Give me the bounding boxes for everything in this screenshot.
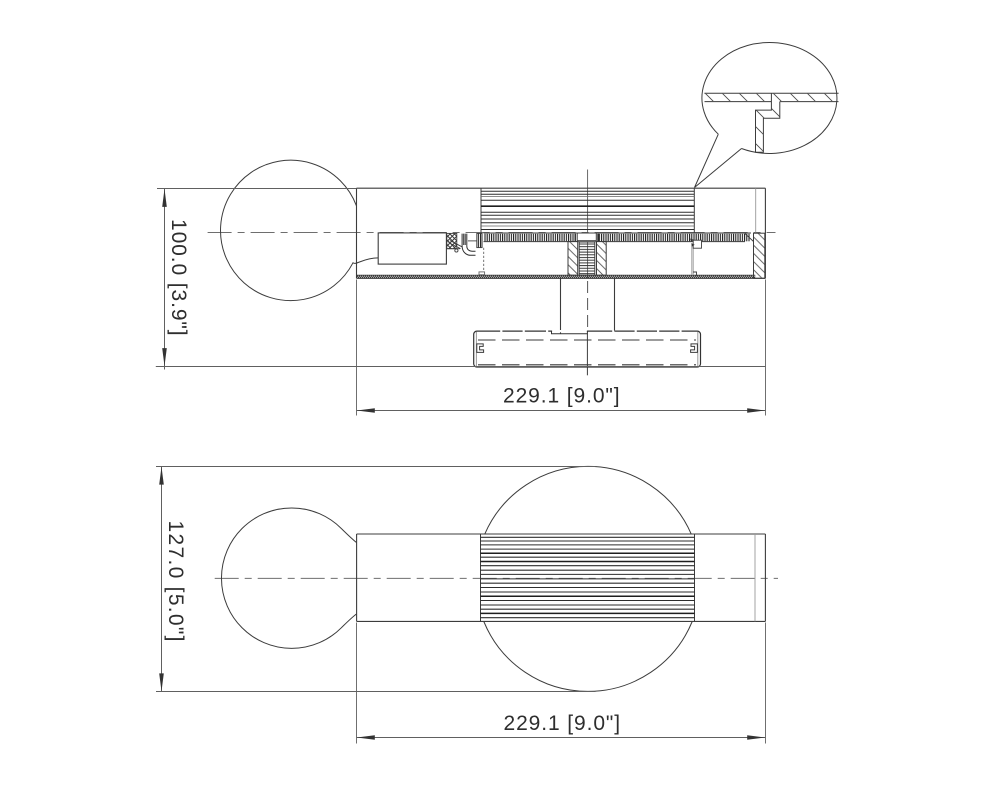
svg-text:229.1 [9.0"]: 229.1 [9.0"] bbox=[504, 712, 622, 735]
svg-text:229.1 [9.0"]: 229.1 [9.0"] bbox=[503, 384, 621, 407]
svg-text:127.0 [5.0"]: 127.0 [5.0"] bbox=[164, 521, 187, 643]
svg-text:100.0 [3.9"]: 100.0 [3.9"] bbox=[167, 219, 190, 337]
